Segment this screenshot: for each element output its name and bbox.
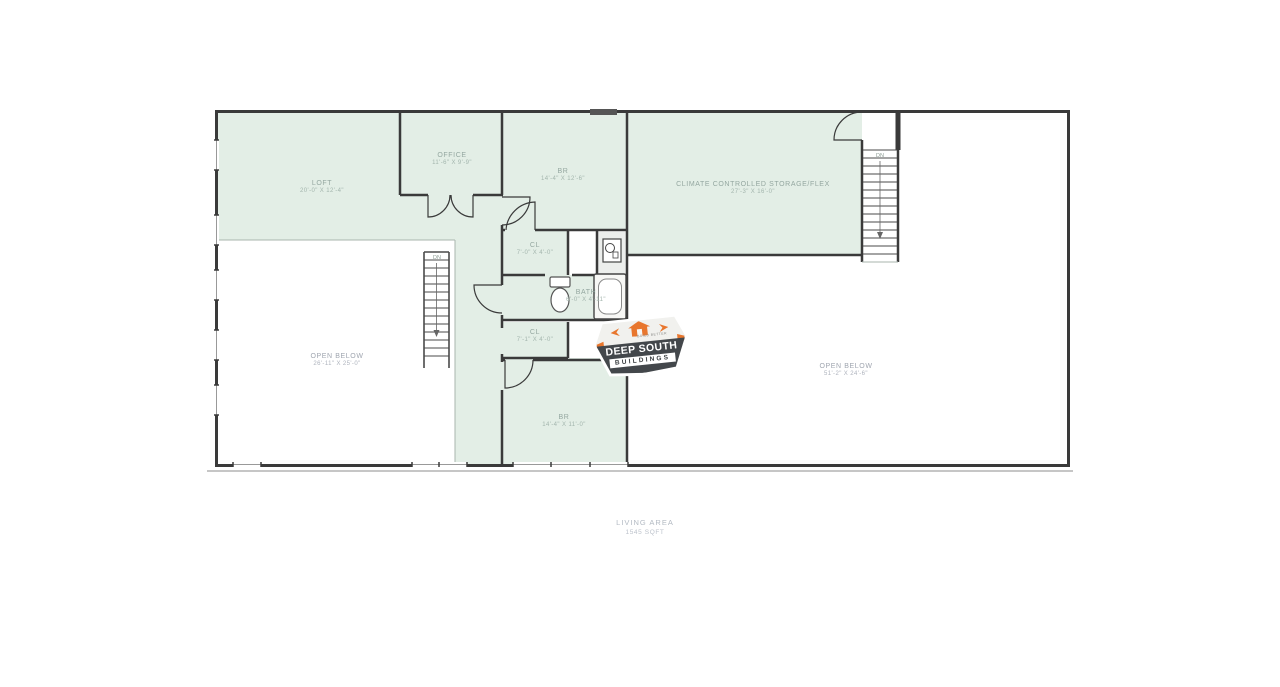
water-heater-icon [603,239,621,262]
logo-left-chevron-icon [610,328,620,337]
top-wall-marker [590,109,617,115]
loft-edge-lines [217,240,898,464]
stairs-arrowhead-left [434,330,440,337]
right-staircase: DN [863,150,897,254]
living-area-value: 1545 SQFT [616,529,674,536]
living-area-caption: LIVING AREA 1545 SQFT [616,518,674,536]
toilet-icon [550,277,570,312]
deep-south-buildings-logo: BUILD BETTER DEEP SOUTH BUILDINGS [590,309,692,381]
living-area-label: LIVING AREA [616,518,674,527]
stairs-dn-label-left: DN [433,255,441,261]
floorplan-drawing: DN DN [215,110,1070,467]
stairs-dn-label-right: DN [876,153,884,159]
floor-plan-page: DN DN LOFT [0,0,1280,687]
bathtub-icon [594,274,626,319]
left-staircase: DN [424,252,449,368]
outer-walls [217,112,1069,466]
